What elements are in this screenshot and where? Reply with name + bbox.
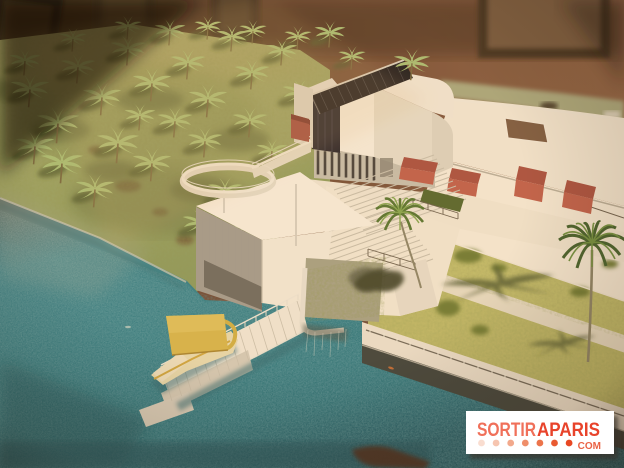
svg-text:COM: COM (578, 441, 601, 452)
svg-text:APARIS: APARIS (537, 420, 600, 441)
svg-text:SORTIR: SORTIR (477, 420, 536, 441)
